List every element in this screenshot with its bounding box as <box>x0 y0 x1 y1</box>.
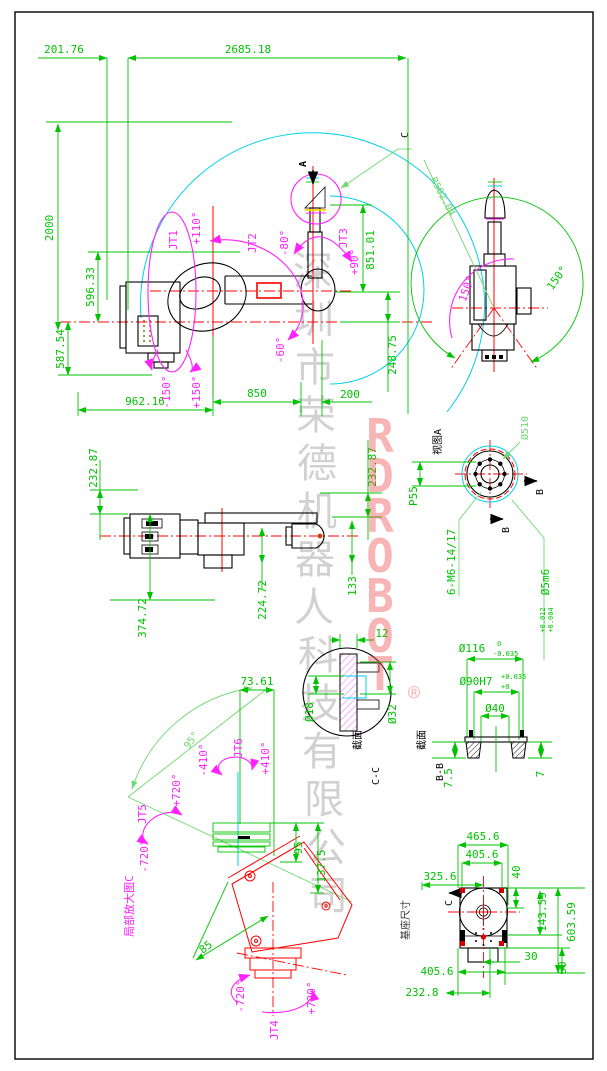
section-cc-label: 截面 <box>351 730 364 750</box>
jt4-pos: +720° <box>305 981 318 1014</box>
dim-2000: 2000 <box>43 215 56 242</box>
pin-spec: Ø5m6 <box>539 569 552 596</box>
dim-224-72: 224.72 <box>256 580 269 620</box>
jt4-label: JT4 <box>268 1020 281 1040</box>
jt3-pos-angle: +90° <box>348 249 361 276</box>
jt5-label: JT5 <box>136 804 149 824</box>
jt6-pos: +410° <box>259 741 272 774</box>
dim-90-hi: +0.035 <box>501 673 526 681</box>
jt1-pos-angle: +150° <box>190 375 203 408</box>
section-b-marker-2: B <box>501 527 512 533</box>
dim-7: 7 <box>534 771 547 778</box>
dim-116-hi: 0 <box>497 640 501 648</box>
jt4-neg: -720° <box>234 979 247 1012</box>
registered-mark: ® <box>408 681 421 705</box>
dim-dia18: Ø18 <box>303 702 316 722</box>
dim-596-33: 596.33 <box>84 267 97 307</box>
watermark-letter: T <box>366 647 394 701</box>
dim-201-76: 201.76 <box>44 43 84 56</box>
dim-dia32: Ø32 <box>386 704 399 724</box>
section-b-marker-1: B <box>535 489 546 495</box>
dim-248-75: 248.75 <box>386 335 399 375</box>
dim-405-6-top: 405.6 <box>465 848 498 861</box>
dim-dia90h7: Ø90H7 <box>459 675 492 688</box>
dim-73-61: 73.61 <box>240 675 273 688</box>
dim-587-54: 587.54 <box>54 329 67 369</box>
dim-603-59: 603.59 <box>565 902 578 942</box>
bolts-spec: 6-M6-14/17 <box>445 529 458 595</box>
watermark-char: 有 <box>302 729 342 775</box>
robot-dimension-drawing: 深 圳 市 荣 德 机 器 人 科 技 有 限 公 司 A C <box>0 0 607 1071</box>
foot-pins <box>485 355 503 359</box>
section-cc-name: C-C <box>371 767 382 785</box>
section-cc-hatch <box>340 654 357 731</box>
dim-850: 850 <box>247 387 267 400</box>
dim-232-87-left: 232.87 <box>87 448 100 488</box>
dim-30: 30 <box>524 950 537 963</box>
jt2-pos-angle: +110° <box>190 211 203 244</box>
dim-133: 133 <box>346 576 359 596</box>
detail-c-title: 局部放大图C <box>122 875 136 937</box>
dim-p55: P55 <box>407 486 420 506</box>
flange-pin-right <box>520 730 524 737</box>
plan-tool-point <box>318 534 323 539</box>
jt1-neg-angle: -150° <box>160 375 173 408</box>
pin-tol-hi: +0.012 <box>539 607 547 632</box>
watermark-char: 机 <box>297 489 337 535</box>
view-c-marker: C <box>444 900 455 906</box>
dim-325-6: 325.6 <box>423 870 456 883</box>
jt3-neg-angle: -80° <box>278 230 291 257</box>
pin-tol-lo: +0.004 <box>547 607 555 632</box>
dim-dia116: Ø116 <box>459 642 486 655</box>
jt3-label: JT3 <box>337 228 350 248</box>
dim-143-59: 143.59 <box>536 892 549 932</box>
dim-40: 40 <box>510 865 523 878</box>
dim-95: 95 <box>292 841 305 854</box>
dim-dia40: Ø40 <box>485 702 505 715</box>
cad-drawing-sheet: 深 圳 市 荣 德 机 器 人 科 技 有 限 公 司 A C <box>0 0 607 1071</box>
section-bb-label: 截面 <box>415 730 428 750</box>
base-view-title: 基座尺寸 <box>399 900 412 940</box>
jt6-neg: -410° <box>197 743 210 776</box>
watermark-char: 人 <box>294 585 334 631</box>
watermark-char: 德 <box>297 441 337 487</box>
flange-section-hatch-left <box>466 742 481 758</box>
dim-374-72: 374.72 <box>136 598 149 638</box>
dim-116-lo: -0.035 <box>493 650 518 658</box>
drawing-frame <box>15 12 593 1059</box>
dia-510: Ø510 <box>519 416 531 440</box>
flange-section-hatch-right <box>511 742 526 758</box>
dim-851-01: 851.01 <box>364 230 377 270</box>
dim-465-6: 465.6 <box>466 830 499 843</box>
jt2-label: JT2 <box>246 233 259 253</box>
view-a-marker: A <box>298 161 309 167</box>
watermark-char: 荣 <box>296 393 336 439</box>
section-bb-name: B-B <box>435 763 446 781</box>
dim-232-8: 232.8 <box>405 986 438 999</box>
dim-60: 60 <box>556 961 569 974</box>
jt2-neg-angle: -60° <box>274 337 287 364</box>
jt6-label: JT6 <box>232 738 245 758</box>
jt5-pos: +720° <box>170 773 183 806</box>
watermark-char: 器 <box>295 537 335 583</box>
jt1-label: JT1 <box>167 230 180 250</box>
watermark-char: 司 <box>308 873 348 919</box>
flange-pin-left <box>469 730 473 737</box>
dim-90-lo: +0 <box>501 683 509 691</box>
watermark-char: 限 <box>304 777 344 823</box>
view-a-title: 视图A <box>431 429 444 455</box>
dim-137-5: 137.5 <box>315 849 328 882</box>
dim-962-16: 962.16 <box>125 395 165 408</box>
detail-c-marker: C <box>400 132 411 138</box>
jt5-neg: -720° <box>138 839 151 872</box>
dim-405-6-bottom: 405.6 <box>420 965 453 978</box>
dim-2685-18: 2685.18 <box>225 43 271 56</box>
dim-200: 200 <box>340 388 360 401</box>
